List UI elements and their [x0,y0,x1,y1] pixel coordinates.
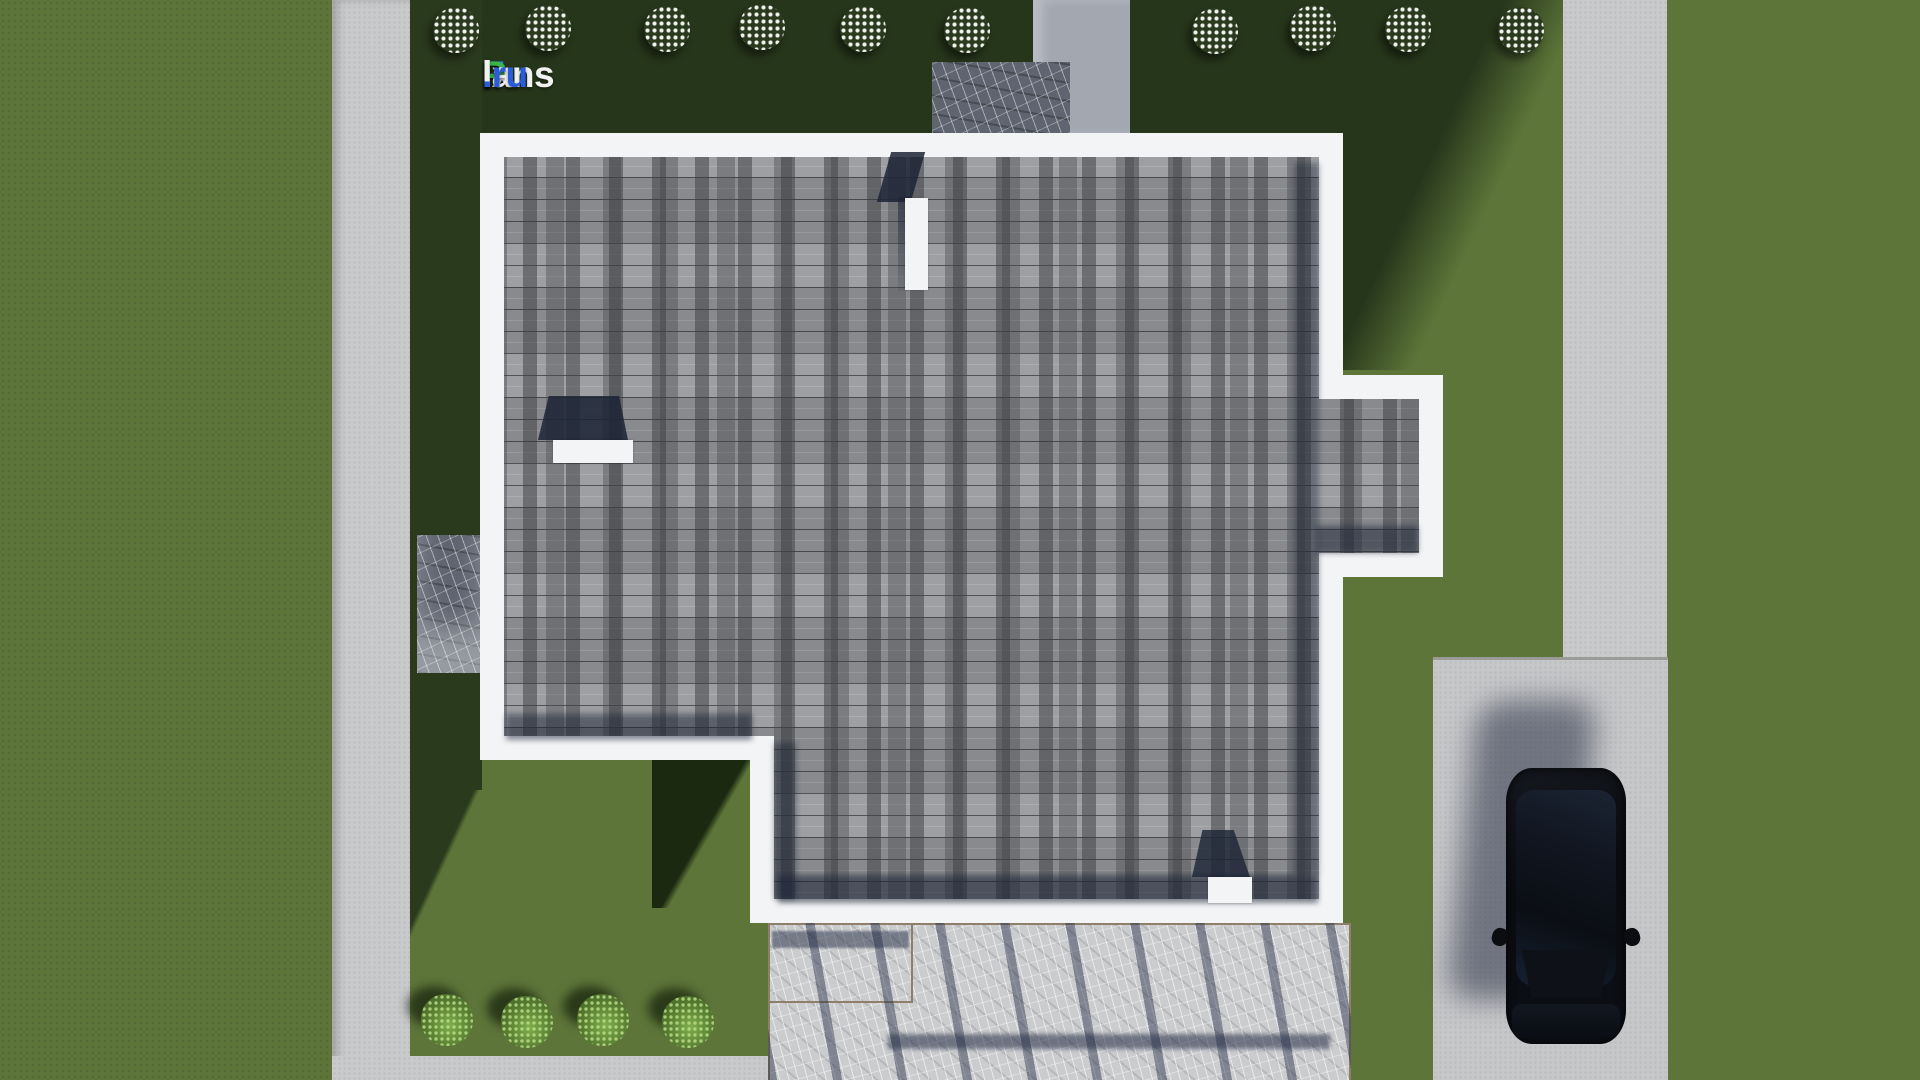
pergola-crossbeam-shadow [888,1034,1330,1049]
flower-bush-icon [1498,7,1544,53]
logo-segment: .ru [482,54,528,96]
stone-pad-entry [932,62,1070,133]
flower-bush-icon [1385,6,1431,52]
parapet-inner-shadow-left-section [506,714,752,740]
house-roof [480,133,1443,923]
flower-bush-icon [944,7,990,53]
grass-left-lawn [0,0,332,1080]
path-right [1563,0,1667,660]
stone-pad-side [417,535,483,673]
flower-bush-icon [644,6,690,52]
flower-bush-icon [525,5,571,51]
pergola-beam-shadows [768,923,1351,1080]
path-left [332,0,410,1080]
car-windshield [1518,950,1614,998]
parapet-stub-bottom [1208,877,1252,903]
green-bush-icon [421,994,473,1046]
green-bush-icon [577,994,629,1046]
vent-left [553,440,633,463]
site-plan-render: FixPlans.ru [0,0,1920,1080]
flower-bush-icon [840,6,886,52]
building-shadow-left-wedge [410,720,482,980]
flower-bush-icon [1290,5,1336,51]
green-bush-icon [501,996,553,1048]
flower-bush-icon [433,7,479,53]
flower-bush-icon [739,4,785,50]
car [1506,768,1626,1044]
vent-shadow-left [538,396,628,440]
green-bush-icon [662,996,714,1048]
path-bottom [332,1056,778,1080]
parapet-inner-shadow-right [1294,163,1319,875]
car-hood [1512,1004,1620,1038]
flower-bush-icon [1192,8,1238,54]
parapet-inner-shadow-step [1316,526,1418,553]
parapet-inner-shadow-step-vertical [774,743,796,899]
chimney-top [905,198,928,290]
